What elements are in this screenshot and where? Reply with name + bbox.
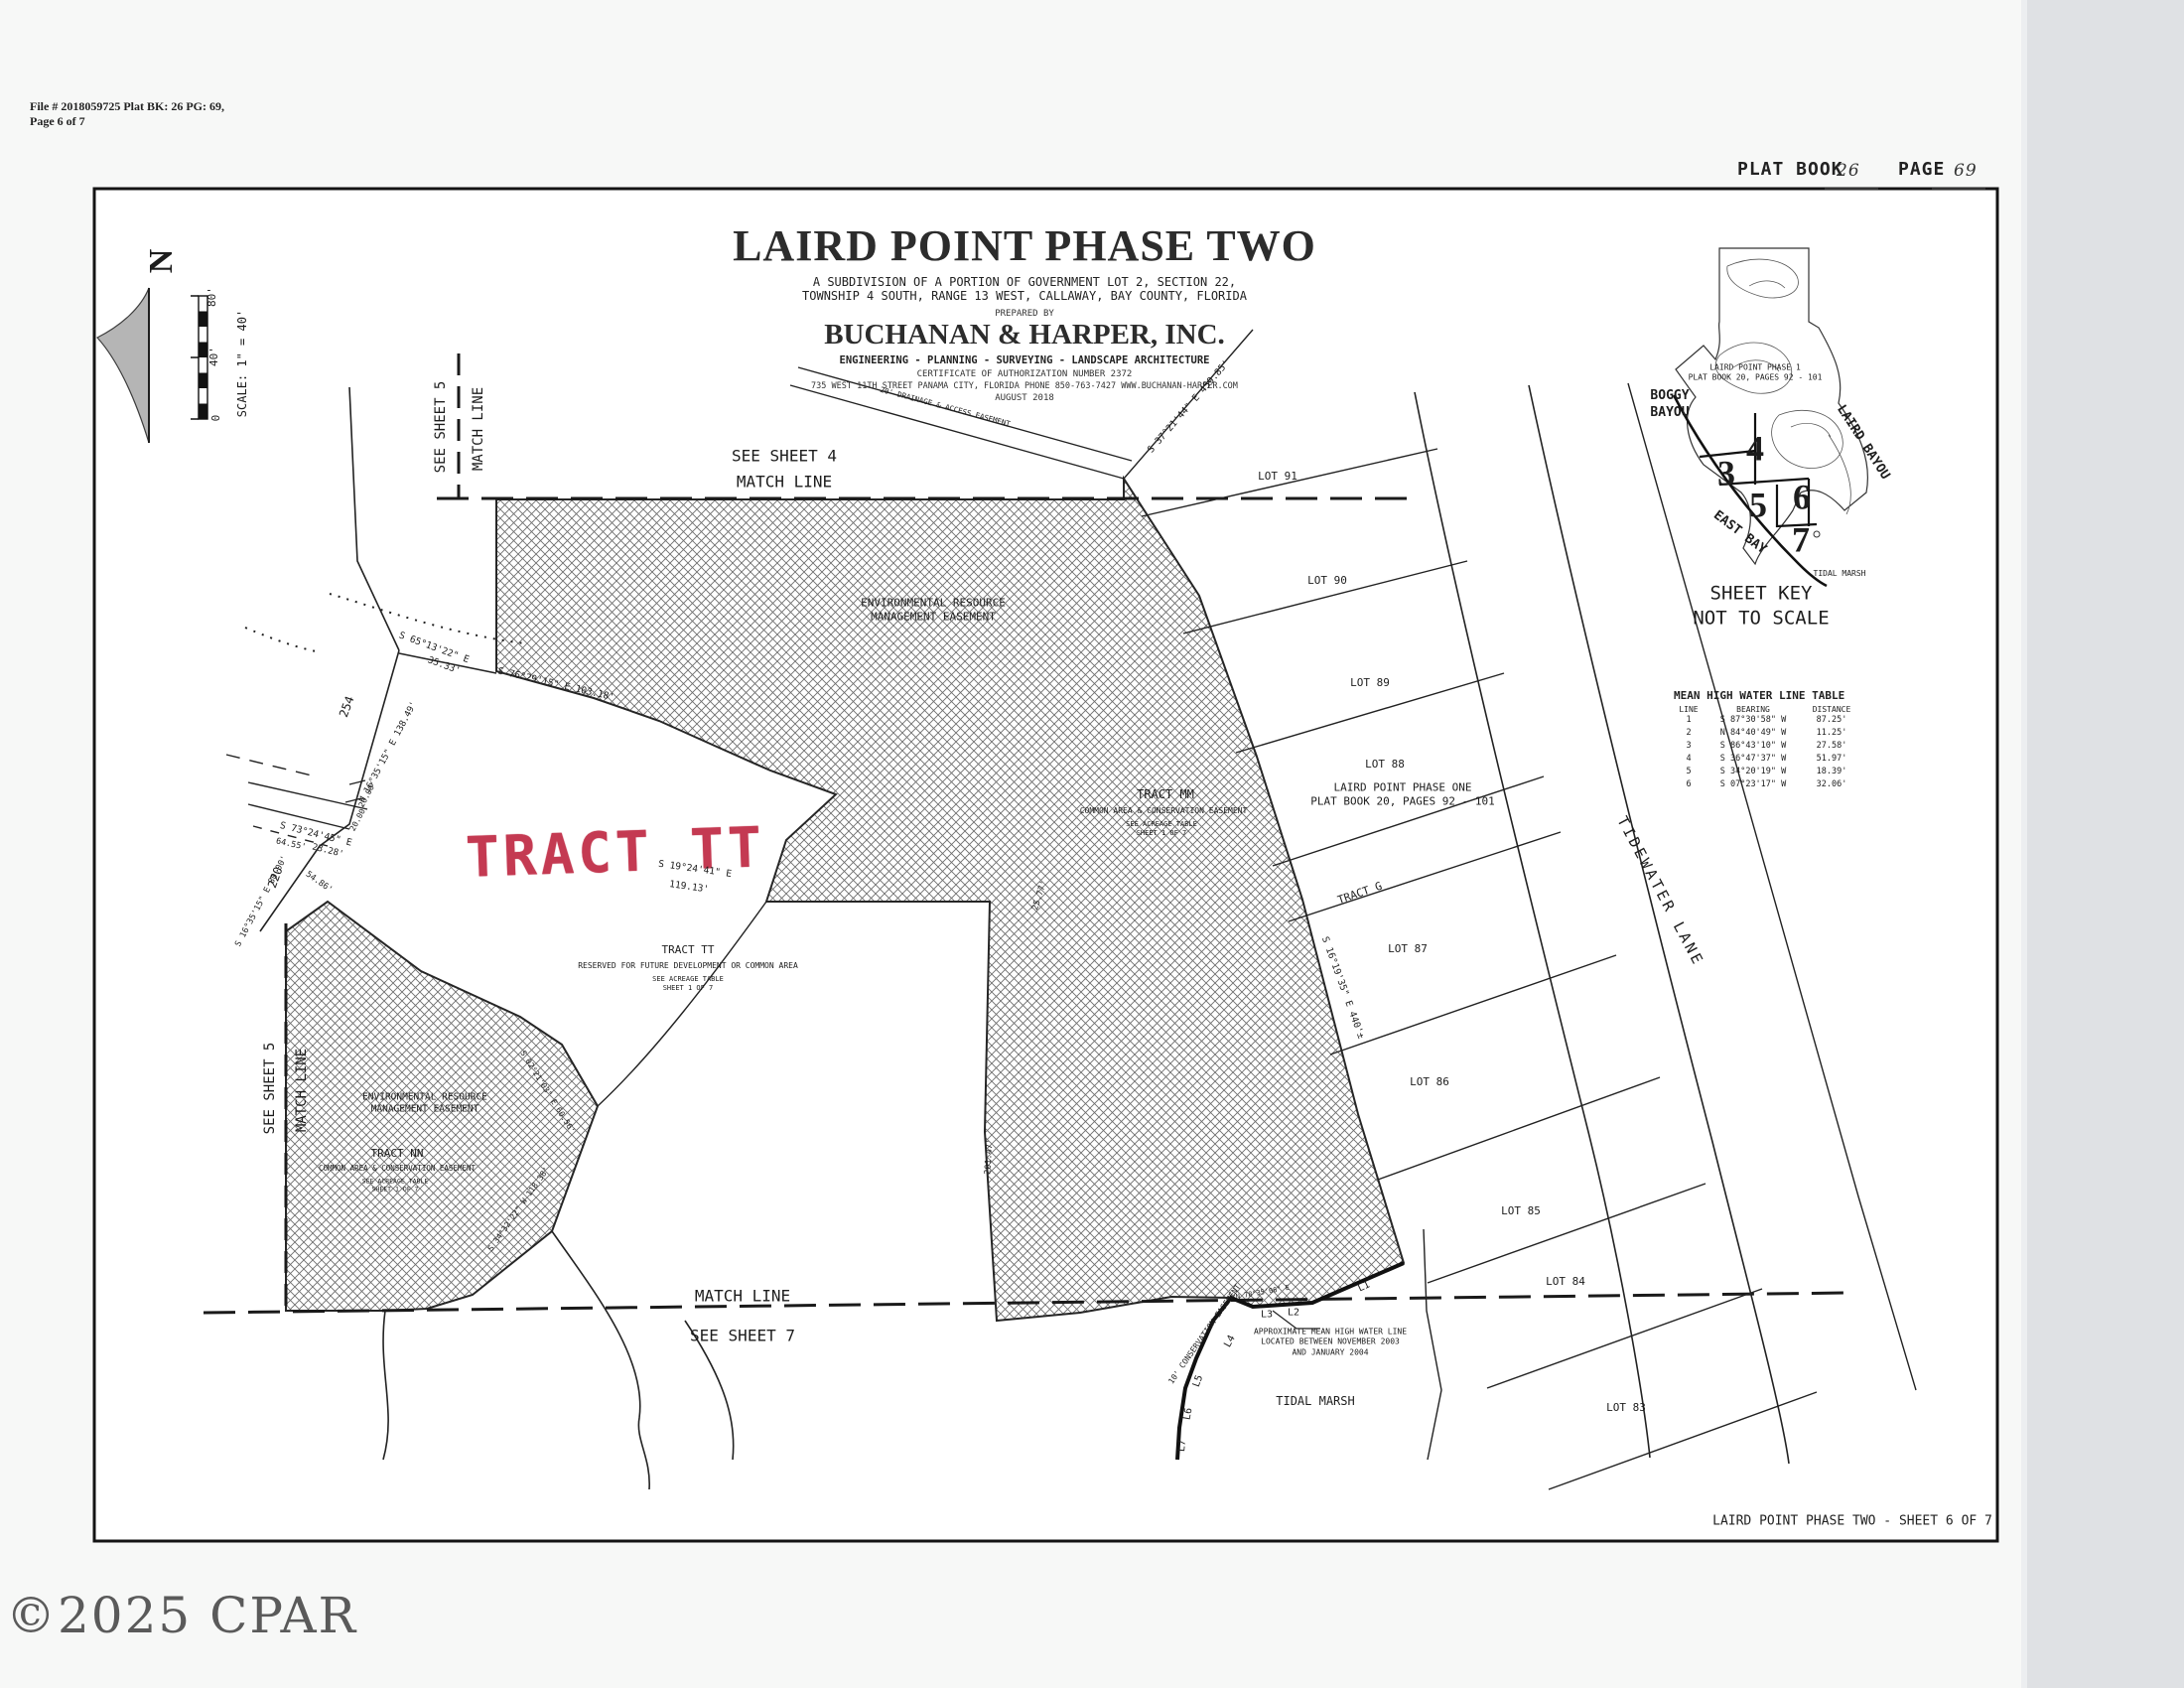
phase-one-note: LAIRD POINT PHASE ONE PLAT BOOK 20, PAGE… — [1310, 781, 1494, 810]
lot-label: LOT 89 — [1350, 676, 1390, 690]
lot-label: LOT 88 — [1365, 758, 1405, 772]
mhw-line-label: L5 — [1190, 1373, 1206, 1389]
copyright-watermark: ©2025 CPAR — [6, 1587, 357, 1644]
key-sheet-3: 3 — [1717, 451, 1735, 497]
drainage-easement-label: 20' DRAINAGE & ACCESS EASEMENT — [879, 385, 1011, 429]
tract-mm-label: TRACT MM — [1137, 787, 1194, 803]
key-tidal-marsh-label: TIDAL MARSH — [1814, 569, 1866, 579]
key-laird-bayou-label: LAIRD BAYOU — [1832, 402, 1892, 483]
tract-mm-note: COMMON AREA & CONSERVATION EASEMENT — [1080, 806, 1248, 816]
mhw-line-label: L3 — [1261, 1309, 1273, 1322]
matchline-sheet5-lower-label: MATCH LINE — [293, 1049, 311, 1132]
bearing-label: 25.77' — [1030, 880, 1050, 913]
mhw-line-label: L7 — [1175, 1439, 1189, 1452]
matchline-sheet4-label: MATCH LINE — [737, 473, 832, 493]
north-arrow-n: N — [140, 249, 184, 274]
sheet-key-caption: SHEET KEY NOT TO SCALE — [1693, 581, 1829, 630]
scale-text: SCALE: 1" = 40' — [235, 310, 251, 417]
matchline-sheet5-upper-label: MATCH LINE — [470, 387, 487, 471]
contour-label: 254 — [337, 694, 358, 720]
mhw-line-label: L2 — [1288, 1307, 1299, 1320]
matchline-sheet5-lower-label: SEE SHEET 5 — [261, 1043, 279, 1135]
tract-tt-subnote: SEE ACREAGE TABLE SHEET 1 OF 7 — [652, 975, 724, 993]
lot-label: LOT 87 — [1388, 942, 1428, 956]
tract-nn-label: TRACT NN — [371, 1147, 424, 1161]
tidewater-lane-label: TIDEWATER LANE — [1612, 813, 1707, 970]
bearing-label: N 78°35'06" E — [1235, 1284, 1291, 1302]
tract-mm-subnote: SEE ACREAGE TABLE SHEET 1 OF 7 — [1126, 820, 1197, 838]
mhw-line-label: L4 — [1221, 1334, 1238, 1350]
bearing-label: 201.47' — [983, 1139, 997, 1176]
lot-label: LOT 84 — [1546, 1275, 1585, 1289]
bearing-label: S 02°21'03" E 60.56' — [517, 1049, 577, 1135]
lot-label: LOT 86 — [1410, 1075, 1449, 1089]
bearing-label: 20.00' — [348, 803, 371, 833]
matchline-sheet5-upper-label: SEE SHEET 5 — [432, 381, 450, 474]
mhw-note: APPROXIMATE MEAN HIGH WATER LINE LOCATED… — [1254, 1327, 1407, 1357]
sheet-footer-label: LAIRD POINT PHASE TWO - SHEET 6 OF 7 — [1712, 1514, 1992, 1529]
matchline-sheet4-label: SEE SHEET 4 — [732, 447, 837, 468]
bearing-label: S 76°29'15" E 103.18' — [496, 665, 615, 704]
plat-scan-page: { "colors": { "annotation_red": "#c43a52… — [0, 0, 2184, 1688]
contour-label: 220 — [265, 865, 287, 891]
lot-label: LOT 90 — [1307, 574, 1347, 588]
tract-tt-note: RESERVED FOR FUTURE DEVELOPMENT OR COMMO… — [578, 961, 798, 971]
map-label-layer: SEE SHEET 4MATCH LINEMATCH LINESEE SHEET… — [0, 0, 2184, 1688]
bearing-label: 64.55' — [275, 836, 307, 853]
matchline-sheet7-label: SEE SHEET 7 — [690, 1327, 795, 1347]
scale-tick-label: 0 — [209, 415, 223, 422]
bearing-label: 54.86' — [303, 870, 334, 897]
key-sheet-7: 7 — [1792, 517, 1810, 564]
mhw-line-label: L6 — [1181, 1407, 1196, 1421]
key-sheet-5: 5 — [1749, 483, 1767, 529]
scale-tick-label: 40' — [207, 347, 221, 366]
lot-label: LOT 91 — [1258, 470, 1297, 484]
tract-tt-label: TRACT TT — [662, 943, 715, 957]
key-sheet-4: 4 — [1746, 426, 1764, 473]
bearing-label: S 37°21'44" E 459.85' — [1146, 358, 1233, 457]
tract-g-label: TRACT G — [1336, 880, 1384, 909]
lot-label: LOT 85 — [1501, 1204, 1541, 1218]
lot-label: LOT 83 — [1606, 1401, 1646, 1415]
tidal-marsh-label: TIDAL MARSH — [1276, 1394, 1354, 1410]
key-boggy-bayou-label: BOGGY BAYOU — [1650, 388, 1689, 422]
env-easement-lower-label: ENVIRONMENTAL RESOURCE MANAGEMENT EASEME… — [362, 1092, 487, 1117]
tract-nn-subnote: SEE ACREAGE TABLE SHEET 1 OF 7 — [362, 1178, 429, 1195]
bearing-label: S 34°32'22" W 118.38' — [486, 1166, 553, 1254]
scale-tick-label: 80' — [205, 287, 219, 307]
conservation-easement-label: 10' CONSERVATION EASEMENT — [1166, 1283, 1244, 1387]
key-sheet-6: 6 — [1793, 475, 1811, 521]
bearing-label: S 16°19'35" E 440'± — [1318, 935, 1367, 1041]
key-phase-one-note: LAIRD POINT PHASE 1 PLAT BOOK 20, PAGES … — [1689, 363, 1823, 384]
mhw-line-label: L1 — [1356, 1279, 1372, 1296]
tract-tt-red-annotation: TRACT TT — [465, 812, 766, 895]
matchline-sheet7-label: MATCH LINE — [695, 1287, 790, 1308]
tract-nn-note: COMMON AREA & CONSERVATION EASEMENT — [319, 1164, 476, 1174]
env-easement-upper-label: ENVIRONMENTAL RESOURCE MANAGEMENT EASEME… — [861, 597, 1006, 626]
